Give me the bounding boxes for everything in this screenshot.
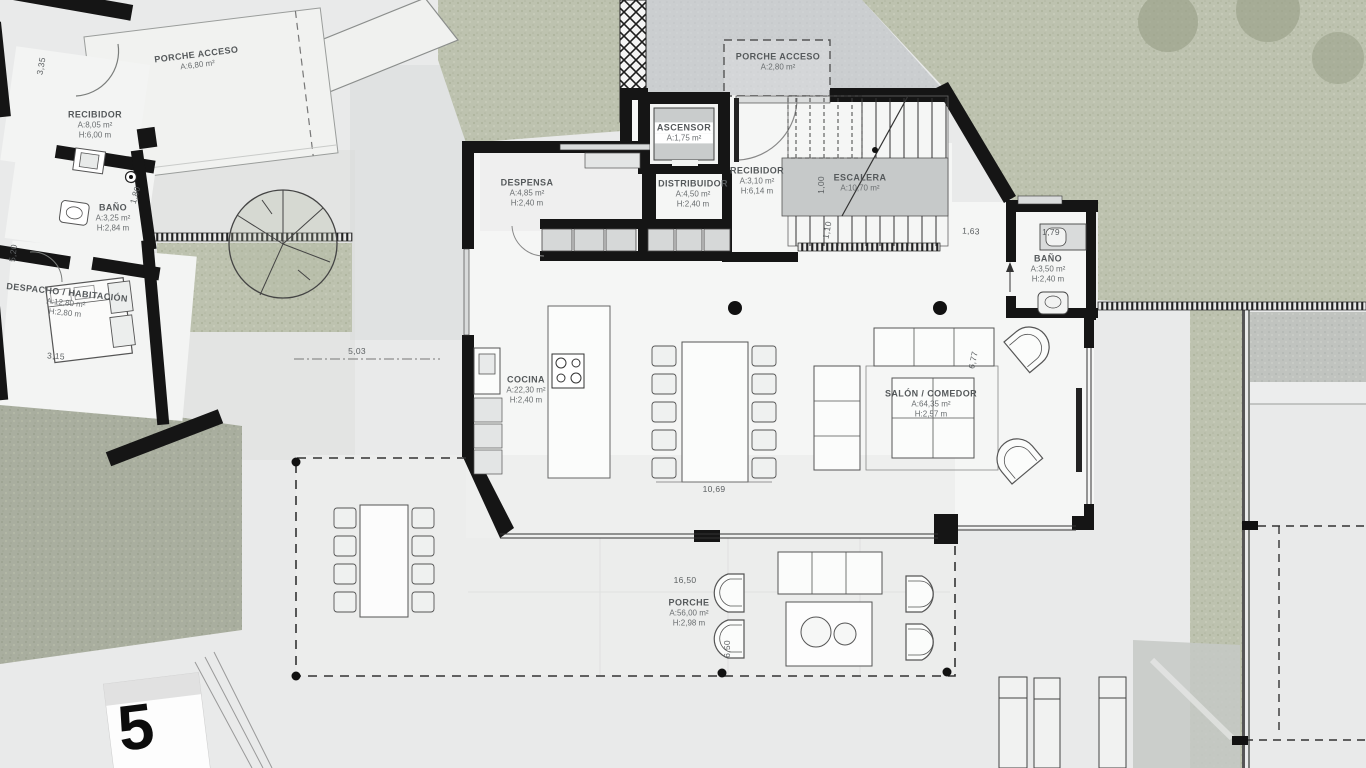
floor-plan-canvas: PORCHE ACCESOA:6,80 m² RECIBIDORA:8,05 m… bbox=[0, 0, 1366, 768]
ceiling-point bbox=[933, 301, 947, 315]
tree-symbol bbox=[229, 190, 337, 298]
left-bath-toilet bbox=[59, 200, 90, 226]
elevator bbox=[650, 104, 718, 166]
left-bath-sink bbox=[73, 148, 106, 174]
ceiling-point bbox=[728, 301, 742, 315]
site-plan-drawing bbox=[0, 0, 1366, 768]
dining-table bbox=[652, 342, 776, 482]
bed-symbol bbox=[46, 277, 139, 363]
cabinet-row bbox=[542, 229, 730, 251]
porche-acceso-outline bbox=[724, 40, 830, 96]
